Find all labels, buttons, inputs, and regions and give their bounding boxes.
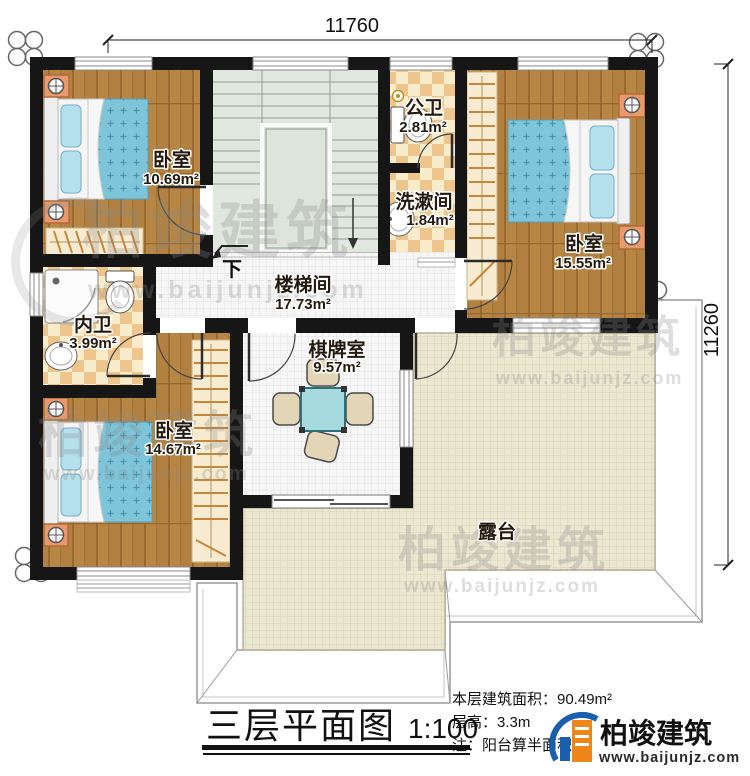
nightstand: [619, 226, 645, 249]
ceiling-lamp-icon: [393, 91, 404, 102]
room-label: 卧室: [155, 419, 193, 442]
room-area: 17.73m²: [275, 296, 331, 313]
watermark-url: www.baijunjz.com: [43, 463, 249, 485]
dimension-top-value: 11760: [325, 15, 379, 37]
brand-name: 柏竣建筑: [600, 717, 712, 749]
room-label: 卧室: [153, 148, 191, 171]
window: [75, 57, 152, 70]
info-floor-area: 本层建筑面积：90.49m²: [452, 691, 612, 708]
chair: [273, 393, 300, 425]
room-label: 棋牌室: [308, 338, 365, 361]
info-floor-height: 层高：3.3m: [452, 714, 530, 731]
room-area: 14.67m²: [145, 441, 201, 458]
window: [518, 57, 608, 70]
opening-threshold: [418, 258, 455, 267]
wardrobe-bedroom-right: [467, 72, 497, 300]
room-area: 3.99m²: [69, 335, 117, 352]
window: [400, 370, 413, 447]
window: [253, 57, 348, 70]
dimension-right: 11260: [701, 59, 733, 570]
bed-top-left: [44, 97, 148, 201]
room-label: 楼梯间: [274, 273, 331, 296]
room-area: 15.55m²: [555, 255, 611, 272]
bed-right: [508, 118, 630, 224]
dimension-right-value: 11260: [701, 303, 723, 357]
watermark-url: www.baijunjz.com: [403, 576, 600, 597]
game-table: [299, 386, 347, 433]
title-underline-thin: [203, 753, 470, 755]
dimension-top: 11760: [103, 15, 657, 53]
nightstand: [44, 75, 69, 97]
sliding-door: [272, 495, 390, 508]
room-label: 洗漱间: [395, 190, 452, 213]
window-sill: [77, 580, 190, 592]
title-underline-thick: [202, 745, 470, 750]
nightstand: [44, 524, 68, 546]
brand-logo: 柏竣建筑 www.baijunjz.com: [552, 715, 740, 766]
chair: [346, 393, 373, 425]
room-label: 卧室: [565, 232, 603, 255]
stair-direction-label: 下: [222, 259, 242, 281]
window: [77, 567, 190, 580]
nightstand: [619, 94, 645, 117]
room-label: 露台: [478, 520, 516, 543]
watermark-url: www.baijunjz.com: [495, 368, 683, 388]
brand-website: www.baijunjz.com: [598, 750, 740, 766]
plan-title: 三层平面图: [206, 705, 396, 746]
room-label: 内卫: [74, 313, 112, 336]
window: [390, 57, 452, 70]
room-label: 公卫: [405, 97, 443, 119]
room-area: 10.69m²: [143, 171, 199, 188]
floor-plan-page: 柏竣建筑 www.baijunjz.com 柏竣建筑 www.baijunjz.…: [0, 0, 750, 776]
floor-plan-canvas: 柏竣建筑 www.baijunjz.com 柏竣建筑 www.baijunjz.…: [0, 0, 750, 776]
room-area: 2.81m²: [399, 119, 447, 136]
room-area: 1.84m²: [406, 212, 454, 229]
watermark-text: 柏竣建筑: [492, 313, 684, 362]
room-area: 9.57m²: [313, 359, 361, 376]
